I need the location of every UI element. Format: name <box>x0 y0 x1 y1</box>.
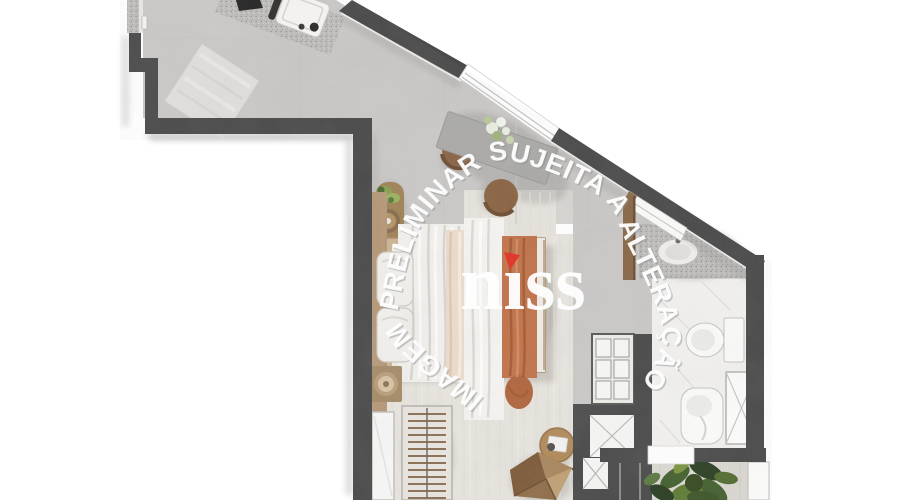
svg-text:nıss: nıss <box>460 239 586 326</box>
